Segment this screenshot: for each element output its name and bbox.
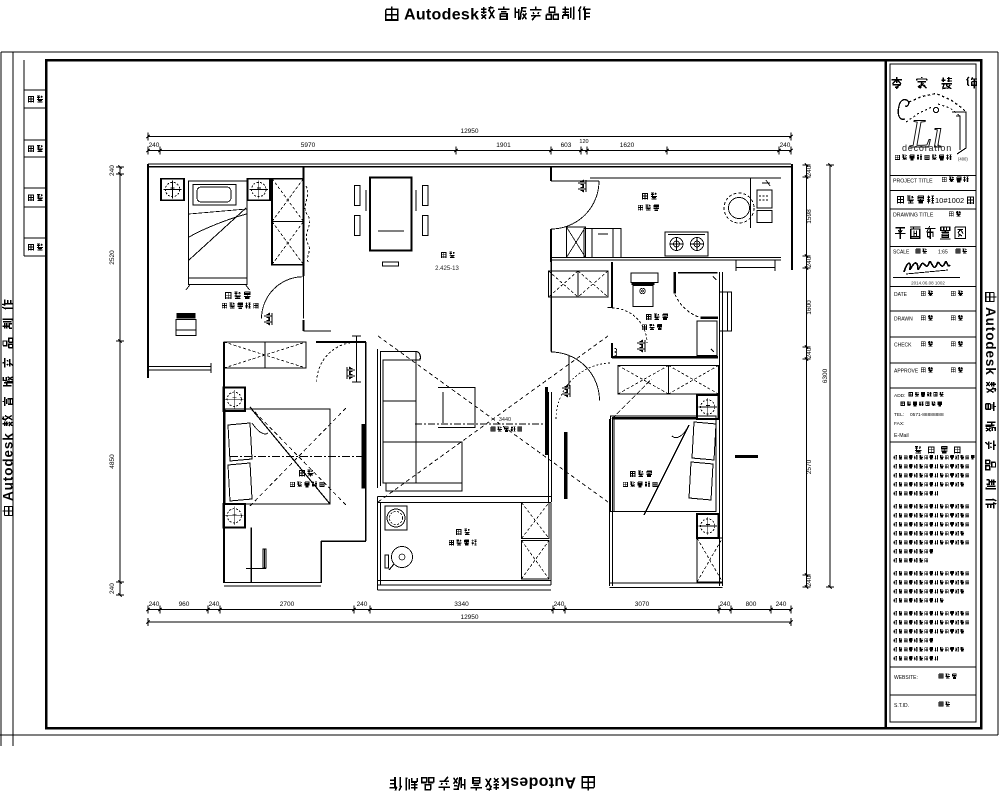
svg-text:CHECK: CHECK [894, 343, 912, 349]
svg-text:APPROVE: APPROVE [894, 369, 919, 375]
svg-text:240: 240 [149, 601, 160, 608]
svg-text:2570: 2570 [806, 459, 813, 474]
svg-text:0571-88888888: 0571-88888888 [910, 412, 944, 418]
svg-text:240: 240 [109, 583, 116, 594]
svg-text:120: 120 [579, 139, 588, 145]
svg-text:240: 240 [806, 256, 813, 267]
svg-text:1:65: 1:65 [938, 250, 948, 256]
svg-text:240: 240 [357, 601, 368, 608]
svg-text:DRAWN: DRAWN [894, 317, 913, 323]
svg-text:decoration: decoration [902, 143, 952, 153]
svg-text:800: 800 [746, 601, 757, 608]
svg-text:TEL:: TEL: [894, 412, 904, 418]
svg-text:10#1002: 10#1002 [935, 196, 964, 205]
svg-text:1620: 1620 [620, 142, 635, 149]
svg-text:3340: 3340 [454, 601, 469, 608]
svg-text:240: 240 [776, 601, 787, 608]
svg-text:6300: 6300 [822, 368, 829, 383]
svg-text:3070: 3070 [635, 601, 650, 608]
svg-text:2520: 2520 [109, 250, 116, 265]
svg-text:WEBSITE:: WEBSITE: [894, 675, 918, 681]
svg-text:DRAWING TITLE: DRAWING TITLE [893, 213, 934, 219]
svg-text:E-Mail: E-Mail [894, 433, 909, 439]
svg-text:12950: 12950 [460, 614, 478, 621]
svg-text:(400): (400) [958, 157, 968, 162]
svg-text:PROJECT TITLE: PROJECT TITLE [893, 179, 933, 185]
svg-text:12950: 12950 [460, 128, 478, 135]
svg-text:2014.06.08 1002: 2014.06.08 1002 [911, 281, 945, 286]
svg-text:DATE: DATE [894, 292, 908, 298]
svg-text:ADD:: ADD: [894, 393, 905, 399]
svg-text:240: 240 [806, 347, 813, 358]
svg-text:240: 240 [806, 165, 813, 176]
svg-text:2700: 2700 [280, 601, 295, 608]
svg-text:240: 240 [806, 575, 813, 586]
svg-text:5970: 5970 [301, 142, 316, 149]
svg-text:240: 240 [720, 601, 731, 608]
svg-text:4850: 4850 [109, 454, 116, 469]
svg-text:SCALE: SCALE [893, 250, 910, 256]
svg-text:1600: 1600 [806, 300, 813, 315]
svg-text:240: 240 [554, 601, 565, 608]
svg-text:960: 960 [179, 601, 190, 608]
svg-text:S.T.ID.: S.T.ID. [894, 703, 909, 709]
svg-text:240: 240 [780, 142, 791, 149]
svg-text:2.425-13: 2.425-13 [435, 266, 459, 272]
svg-text:1901: 1901 [496, 142, 511, 149]
svg-text:1598: 1598 [806, 209, 813, 224]
svg-text:240: 240 [109, 165, 116, 176]
svg-text:240: 240 [209, 601, 220, 608]
svg-text:FAX:: FAX: [894, 421, 904, 427]
svg-text:603: 603 [561, 142, 572, 149]
svg-text:3440: 3440 [499, 417, 511, 423]
svg-text:240: 240 [149, 142, 160, 149]
